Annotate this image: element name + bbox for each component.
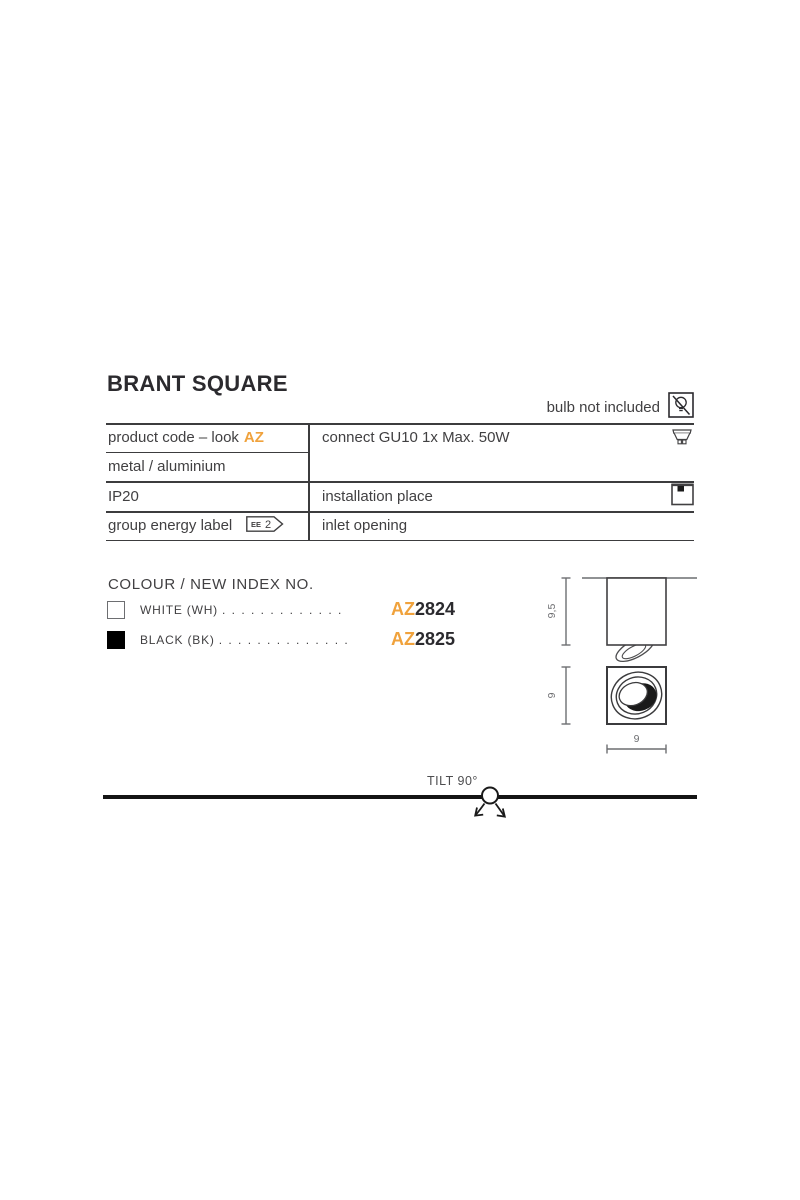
side-height-label: 9,5 (546, 604, 558, 619)
installation-label: installation place (322, 488, 433, 505)
spec-table: product code – look AZ metal / aluminium… (106, 423, 694, 541)
spec-ip-rating: IP20 (108, 481, 139, 511)
product-code-label: product code – look (108, 429, 239, 446)
dot-leader: . . . . . . . . . . . . . (222, 603, 387, 617)
inlet-label: inlet opening (322, 517, 407, 534)
front-width-label: 9 (634, 733, 640, 745)
datasheet-page: BRANT SQUARE bulb not included product c… (0, 0, 800, 1200)
colour-option-white: WHITE (WH) . . . . . . . . . . . . . AZ2… (107, 600, 455, 619)
gu10-bulb-icon (671, 427, 693, 454)
connect-label: connect GU10 1x Max. 50W (322, 429, 510, 446)
table-divider-vertical (308, 423, 310, 541)
spec-material: metal / aluminium (108, 452, 226, 481)
spec-energy: group energy label EE 2 (108, 511, 284, 540)
index-code-prefix: AZ (391, 629, 415, 649)
colour-section-heading: COLOUR / NEW INDEX NO. (108, 576, 314, 593)
front-height-label: 9 (546, 692, 558, 698)
index-code: AZ2824 (391, 599, 455, 620)
tilt-arrows-icon (455, 780, 525, 830)
index-code-prefix: AZ (391, 599, 415, 619)
tilt-baseline (103, 795, 697, 799)
material-label: metal / aluminium (108, 458, 226, 475)
black-swatch (107, 631, 125, 649)
bulb-note: bulb not included (547, 392, 694, 423)
spec-connect: connect GU10 1x Max. 50W (322, 423, 510, 452)
fixture-body-side (607, 578, 666, 645)
energy-badge-value: 2 (265, 519, 271, 531)
no-bulb-icon (668, 392, 694, 423)
energy-label: group energy label (108, 517, 232, 534)
index-code-number: 2825 (415, 629, 455, 649)
spec-installation: installation place (322, 481, 433, 511)
dot-leader: . . . . . . . . . . . . . . (219, 633, 387, 647)
dimension-drawings: 9,5 9 9 (540, 565, 710, 770)
colour-name: WHITE (WH) (140, 603, 218, 617)
energy-class-badge: EE 2 (246, 516, 284, 536)
index-code-number: 2824 (415, 599, 455, 619)
ceiling-mount-icon (671, 483, 694, 511)
ip-rating-label: IP20 (108, 488, 139, 505)
energy-badge-small: EE (251, 520, 261, 529)
page-title: BRANT SQUARE (107, 371, 288, 397)
colour-name: BLACK (BK) (140, 633, 215, 647)
spec-product-code: product code – look AZ (108, 423, 264, 452)
index-code: AZ2825 (391, 629, 455, 650)
colour-option-black: BLACK (BK) . . . . . . . . . . . . . . A… (107, 630, 455, 649)
spec-inlet: inlet opening (322, 511, 407, 540)
white-swatch (107, 601, 125, 619)
product-code-accent: AZ (244, 429, 264, 446)
bulb-note-label: bulb not included (547, 399, 660, 416)
